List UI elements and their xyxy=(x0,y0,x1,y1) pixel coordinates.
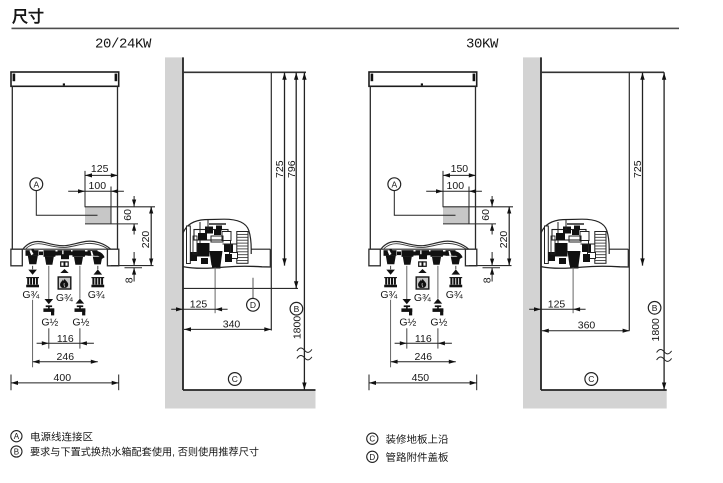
svg-text:796: 796 xyxy=(286,160,298,178)
svg-text:340: 340 xyxy=(223,318,241,330)
svg-text:30KW: 30KW xyxy=(466,37,499,53)
svg-text:D: D xyxy=(369,453,375,462)
svg-text:1800: 1800 xyxy=(650,318,662,342)
svg-text:管路附件盖板: 管路附件盖板 xyxy=(386,451,449,464)
svg-text:1800: 1800 xyxy=(292,316,304,340)
svg-text:20/24KW: 20/24KW xyxy=(95,37,152,53)
svg-text:电源线连接区: 电源线连接区 xyxy=(30,430,93,443)
svg-text:450: 450 xyxy=(412,372,430,384)
svg-text:C: C xyxy=(232,374,238,384)
svg-text:B: B xyxy=(14,448,19,457)
svg-text:尺寸: 尺寸 xyxy=(12,7,44,26)
svg-text:B: B xyxy=(294,304,300,314)
svg-text:B: B xyxy=(652,303,658,313)
svg-text:C: C xyxy=(369,435,375,444)
svg-text:C: C xyxy=(588,374,594,384)
svg-text:D: D xyxy=(250,300,256,310)
svg-text:125: 125 xyxy=(91,163,109,175)
svg-text:要求与下置式换热水箱配套使用, 否则使用推荐尺寸: 要求与下置式换热水箱配套使用, 否则使用推荐尺寸 xyxy=(30,446,259,459)
svg-text:装修地板上沿: 装修地板上沿 xyxy=(386,433,449,446)
svg-text:150: 150 xyxy=(451,163,469,175)
svg-text:A: A xyxy=(14,432,20,441)
svg-text:360: 360 xyxy=(578,320,596,332)
svg-text:400: 400 xyxy=(54,372,72,384)
